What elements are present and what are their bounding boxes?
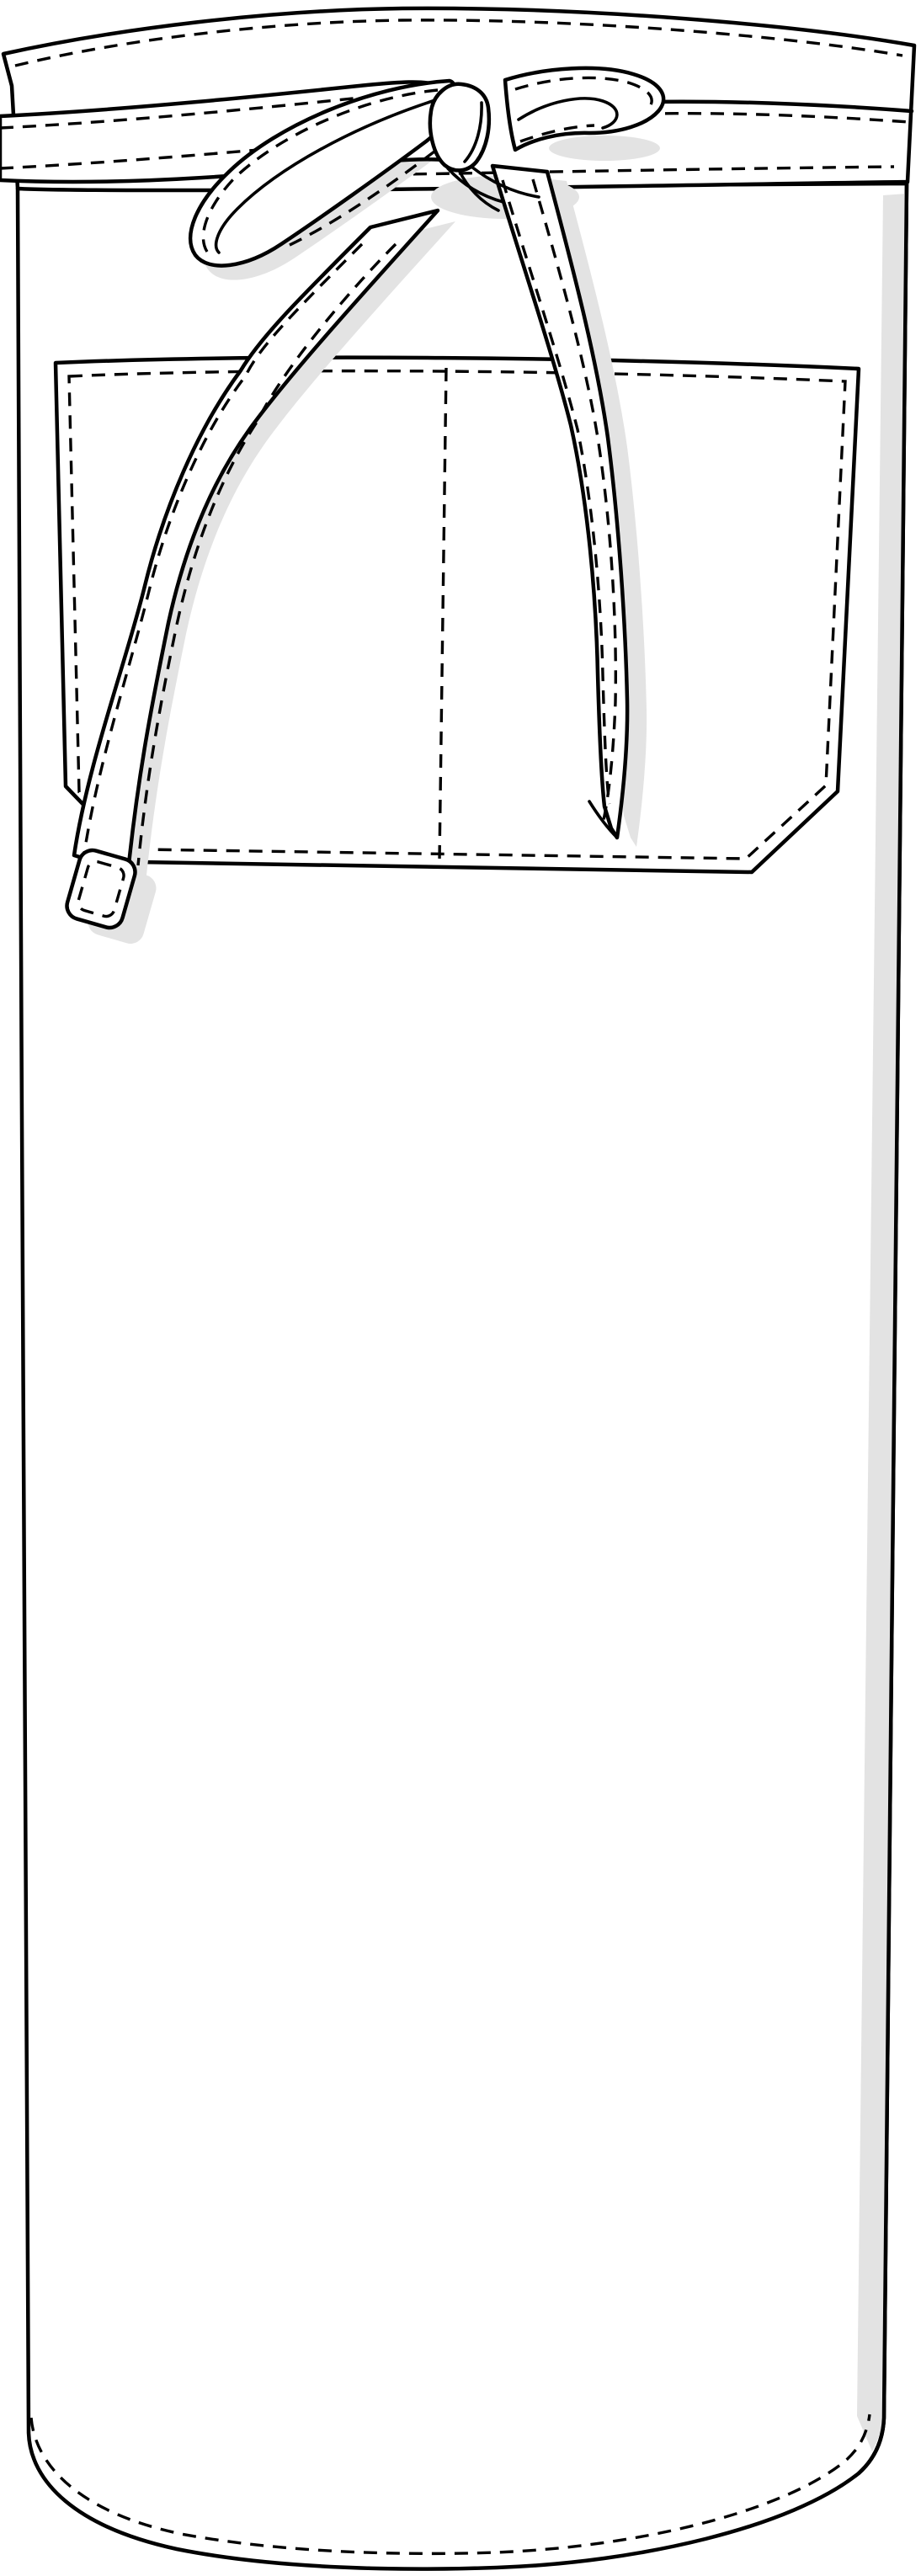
artwork [0,8,914,2569]
right-loop-shadow [549,136,660,161]
apron-flat-drawing: Bistro waist apron — technical flat line… [0,0,921,2576]
apron-illustration-stage: Bistro waist apron — technical flat line… [0,0,921,2576]
